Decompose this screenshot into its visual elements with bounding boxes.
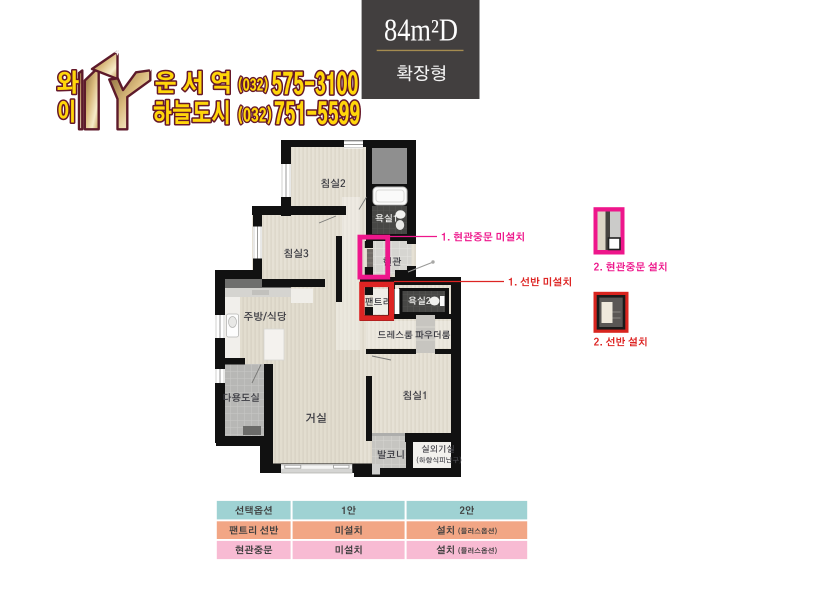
- svg-text:84m²D: 84m²D: [384, 13, 458, 48]
